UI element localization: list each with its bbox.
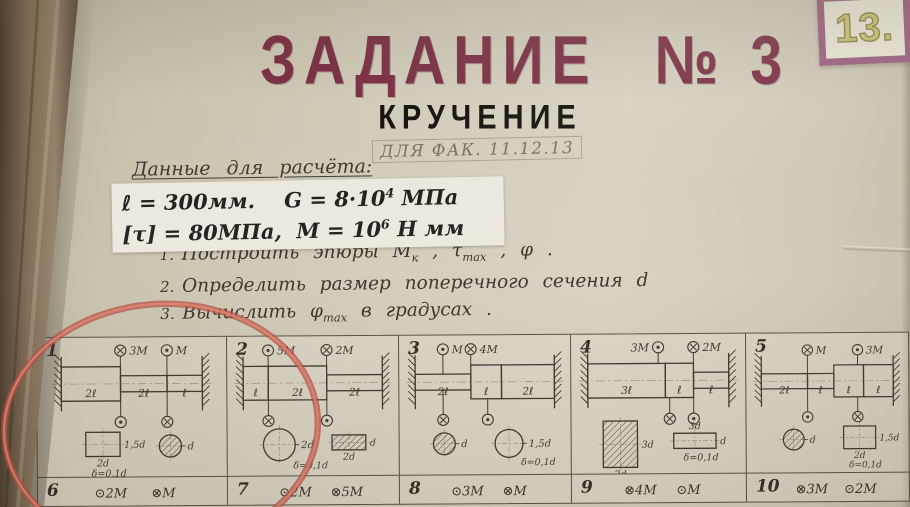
moment-label: ⊙2M bbox=[279, 485, 312, 500]
data-caption: Данные для расчёта: bbox=[132, 155, 373, 180]
svg-text:3ℓ: 3ℓ bbox=[621, 385, 632, 397]
svg-text:1,5d: 1,5d bbox=[124, 440, 145, 451]
svg-text:3M: 3M bbox=[631, 341, 650, 354]
svg-text:2ℓ: 2ℓ bbox=[137, 388, 149, 400]
variant-number: 9 bbox=[581, 478, 593, 498]
moment-label: ⊗M bbox=[151, 486, 175, 501]
variant-cell-3: 32ℓℓ2ℓM4Md1,5dδ=0,1d bbox=[399, 335, 572, 476]
task-text: Вычислить φmax в градусах . bbox=[182, 297, 492, 333]
moment-label: ⊗3M bbox=[795, 482, 828, 497]
wood-frame-edge bbox=[0, 0, 100, 507]
svg-text:3M: 3M bbox=[866, 344, 884, 356]
variant-number: 4 bbox=[580, 338, 592, 358]
variant-diagram: 2ℓℓ2ℓM4Md1,5dδ=0,1d bbox=[399, 335, 571, 475]
variant-cell-10: 10⊗3M⊙2M bbox=[747, 473, 909, 502]
corner-number: 13. bbox=[834, 5, 895, 53]
pencil-note: ДЛЯ ФАК. 11.12.13 bbox=[372, 136, 583, 163]
task-list: 1.Построить эпюры Mк , τmax , φ .2.Опред… bbox=[159, 236, 649, 333]
svg-text:2ℓ: 2ℓ bbox=[521, 386, 533, 398]
svg-text:δ=0,1d: δ=0,1d bbox=[683, 452, 718, 463]
svg-text:2d: 2d bbox=[613, 469, 626, 473]
page-title: ЗАДАНИЕ№ 3 bbox=[168, 20, 882, 99]
moment-label: ⊙2M bbox=[844, 482, 877, 497]
svg-text:ℓ: ℓ bbox=[676, 384, 681, 396]
svg-text:3M: 3M bbox=[129, 344, 148, 357]
variant-cell-9: 9⊗4M⊙M bbox=[572, 474, 747, 503]
svg-text:ℓ: ℓ bbox=[182, 388, 187, 400]
svg-text:2M: 2M bbox=[334, 344, 354, 357]
moment-label: ⊗M bbox=[503, 484, 527, 499]
svg-text:4M: 4M bbox=[479, 343, 499, 356]
corner-number-tag: 13. bbox=[816, 0, 910, 66]
task-number: 2. bbox=[160, 274, 182, 301]
moment-label: ⊙M bbox=[676, 483, 700, 498]
variant-cell-2: 2ℓ2ℓ2ℓ5M2M2dδ=0,1d2dd bbox=[227, 336, 400, 477]
variant-cell-5: 52ℓℓℓℓM3Md2d1,5dδ=0,1d bbox=[746, 333, 909, 474]
svg-text:M: M bbox=[175, 344, 188, 357]
svg-text:2M: 2M bbox=[701, 341, 721, 354]
data-strip: ℓ = 300мм. G = 8·104 МПа [τ] = 80МПа, М … bbox=[111, 176, 504, 253]
svg-text:M: M bbox=[815, 345, 827, 357]
variant-number: 5 bbox=[755, 337, 767, 357]
svg-text:δ=0,1d: δ=0,1d bbox=[849, 460, 882, 470]
svg-text:d: d bbox=[461, 439, 467, 450]
variant-number: 10 bbox=[756, 476, 780, 496]
svg-text:2d: 2d bbox=[342, 452, 355, 463]
variant-cell-4: 43ℓℓℓ3M2M2d3d3ddδ=0,1d bbox=[571, 334, 747, 475]
moment-label: ⊗5M bbox=[331, 485, 364, 500]
svg-text:δ=0,1d: δ=0,1d bbox=[521, 457, 556, 468]
svg-text:2ℓ: 2ℓ bbox=[778, 385, 789, 396]
svg-text:d: d bbox=[188, 441, 195, 452]
svg-text:d: d bbox=[810, 435, 816, 446]
svg-text:1,5d: 1,5d bbox=[879, 433, 899, 443]
data-line-2: [τ] = 80МПа, М = 106 Н мм bbox=[122, 209, 495, 247]
task-number: 3. bbox=[160, 300, 182, 332]
variant-number: 8 bbox=[409, 479, 421, 499]
svg-text:δ=0,1d: δ=0,1d bbox=[293, 460, 328, 471]
svg-text:ℓ: ℓ bbox=[847, 385, 851, 396]
task-item: 3.Вычислить φmax в градусах . bbox=[160, 295, 649, 333]
svg-text:2ℓ: 2ℓ bbox=[291, 387, 303, 399]
svg-text:ℓ: ℓ bbox=[253, 387, 258, 399]
variant-diagram: ℓ2ℓ2ℓ5M2M2dδ=0,1d2dd bbox=[227, 336, 399, 476]
svg-text:5M: 5M bbox=[277, 344, 296, 357]
paper-crease bbox=[843, 246, 910, 253]
variant-number: 2 bbox=[236, 340, 248, 360]
svg-text:3d: 3d bbox=[642, 440, 654, 451]
variant-cell-8: 8⊙3M⊗M bbox=[400, 475, 572, 504]
assignment-sheet-photo: 13. ЗАДАНИЕ№ 3 КРУЧЕНИЕ ДЛЯ ФАК. 11.12.1… bbox=[0, 0, 910, 507]
svg-text:M: M bbox=[451, 343, 464, 356]
variant-number: 7 bbox=[237, 480, 249, 500]
variants-table: 12ℓ2ℓℓ3MM2d1,5dδ=0,1dd2ℓ2ℓ2ℓ5M2M2dδ=0,1d… bbox=[36, 332, 910, 507]
variant-number: 3 bbox=[408, 339, 420, 359]
svg-text:ℓ: ℓ bbox=[708, 384, 713, 396]
svg-text:ℓ: ℓ bbox=[819, 385, 823, 396]
moment-label: ⊙3M bbox=[451, 484, 484, 499]
svg-text:ℓ: ℓ bbox=[483, 386, 488, 398]
svg-text:3d: 3d bbox=[689, 421, 701, 432]
svg-text:ℓ: ℓ bbox=[876, 385, 880, 396]
svg-text:2d: 2d bbox=[300, 440, 314, 451]
title-word: ЗАДАНИЕ bbox=[260, 21, 597, 98]
svg-text:d: d bbox=[370, 438, 376, 449]
title-number: № 3 bbox=[655, 21, 790, 98]
variant-diagram: 2ℓℓℓℓM3Md2d1,5dδ=0,1d bbox=[746, 333, 909, 473]
svg-text:2ℓ: 2ℓ bbox=[437, 386, 449, 398]
variant-cell-7: 7⊙2M⊗5M bbox=[228, 476, 400, 505]
variant-diagram: 3ℓℓℓ3M2M2d3d3ddδ=0,1d bbox=[571, 334, 746, 474]
svg-text:2ℓ: 2ℓ bbox=[348, 387, 360, 399]
moment-label: ⊗4M bbox=[624, 483, 657, 498]
svg-text:d: d bbox=[720, 436, 726, 447]
svg-text:1,5d: 1,5d bbox=[529, 439, 551, 450]
page-subtitle: КРУЧЕНИЕ bbox=[0, 99, 910, 138]
